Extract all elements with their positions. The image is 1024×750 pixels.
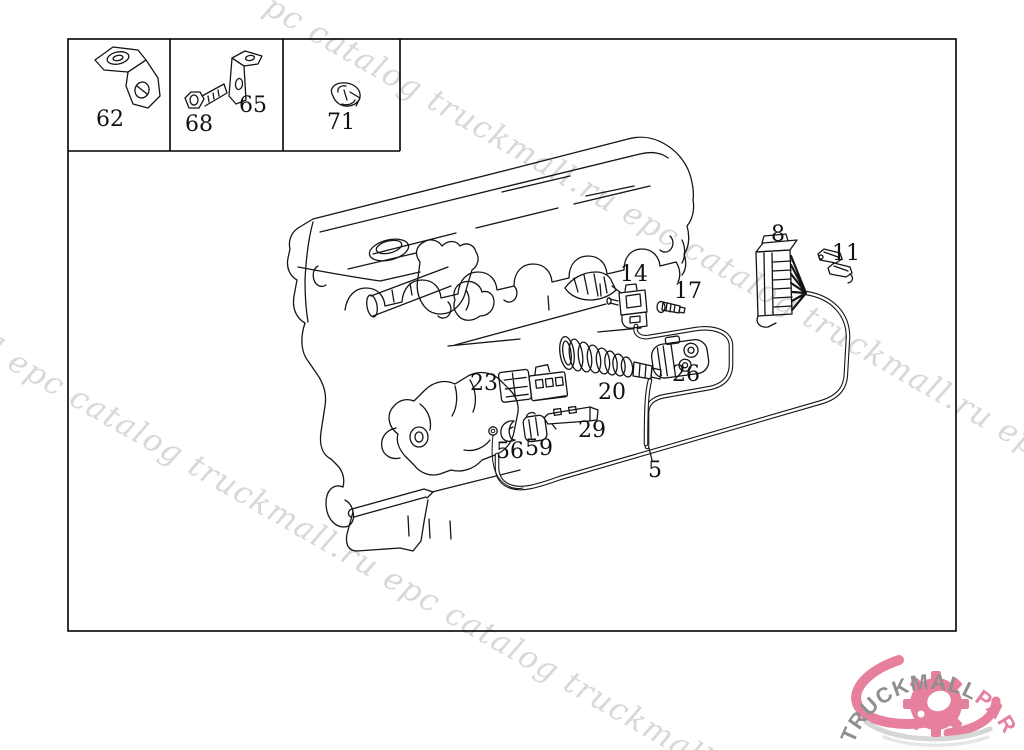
part-callout-5: 5: [648, 458, 662, 483]
part-callout-17: 17: [674, 279, 702, 304]
part-callout-11: 11: [832, 241, 860, 266]
part-callout-68: 68: [185, 112, 213, 137]
part-callout-71: 71: [327, 110, 355, 135]
watermark-text-1: pc catalog truckmall.ru epc catalog truc…: [258, 0, 1024, 473]
part-callout-20: 20: [598, 380, 626, 405]
part-callout-23: 23: [470, 371, 498, 396]
part-callout-65: 65: [239, 93, 267, 118]
parts-catalog-page: pc catalog truckmall.ru epc catalog truc…: [0, 0, 1024, 750]
part-callout-8: 8: [771, 222, 785, 247]
part-callout-59: 59: [525, 436, 553, 461]
part-callout-26: 26: [672, 362, 700, 387]
inset-part-62-bracket: [95, 47, 160, 108]
parts-diagram-canvas: pc catalog truckmall.ru epc catalog truc…: [0, 0, 1024, 750]
inset-part-71-clamp: [331, 83, 360, 106]
part-callout-56: 56: [496, 439, 524, 464]
part-14-sensor-connector: [607, 284, 647, 328]
part-callout-62: 62: [96, 107, 124, 132]
part-23-connector: [498, 363, 568, 405]
part-20-rubber-boot: [558, 336, 661, 379]
inset-part-68-bolt: [185, 84, 227, 108]
part-callout-29: 29: [578, 418, 606, 443]
part-callout-14: 14: [620, 262, 648, 287]
